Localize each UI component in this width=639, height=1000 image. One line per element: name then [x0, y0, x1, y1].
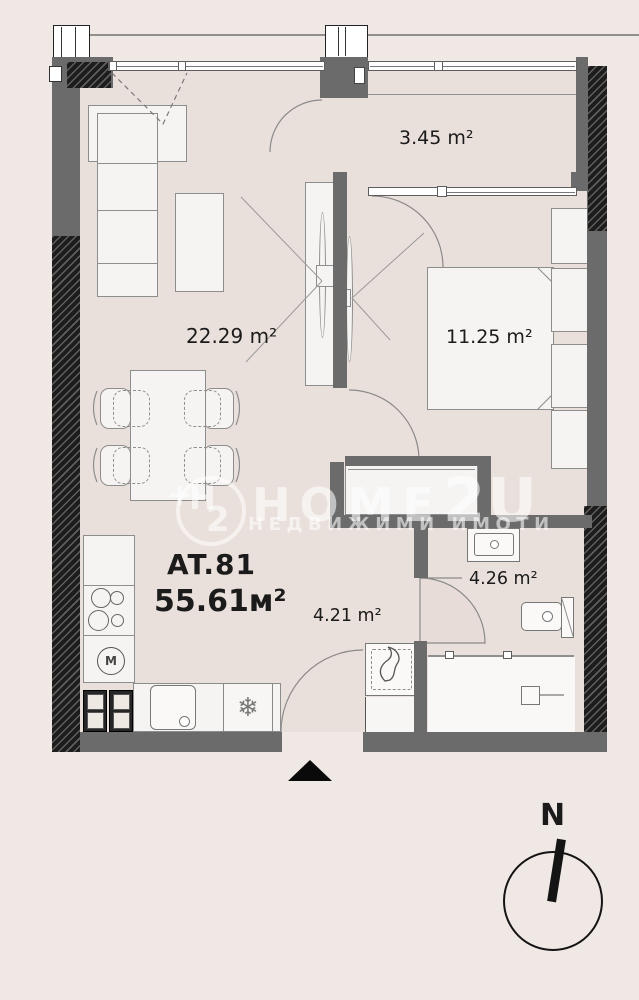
window-glass-line	[370, 66, 575, 67]
wall-balcony-right	[576, 57, 588, 190]
wall-bottom-right	[363, 732, 607, 752]
living-area-label: 22.29 m²	[186, 324, 277, 348]
column-detail-line	[345, 27, 346, 56]
wall-bathdoor-lower	[414, 641, 427, 733]
wall-notch	[49, 66, 62, 82]
apartment-total-area-label: 55.61м²	[154, 584, 287, 619]
watermark-subtitle: НЕДВИЖИМИ ИМОТИ	[248, 514, 555, 535]
bedroom-window	[443, 187, 577, 196]
window-mullion	[434, 61, 443, 71]
wall-hatched-bathroom-right	[584, 506, 607, 752]
bedroom-area-label: 11.25 m²	[446, 326, 533, 348]
chair-backrest-arc	[94, 391, 98, 425]
wall-tv-partition	[333, 172, 347, 388]
watermark-logo-sub2: 2	[206, 500, 230, 540]
balcony-door-leaf	[368, 187, 443, 196]
chair-backrest-arc	[236, 391, 240, 425]
bed-pillow-fold	[538, 268, 552, 409]
toilet-tank-diagonal	[562, 599, 573, 636]
structural-column-mid	[325, 25, 368, 59]
window-opening-dashes	[112, 73, 187, 124]
floor-plan-page: { "plan": { "apartment": { "code": "AT.8…	[0, 0, 639, 1000]
window-mullion	[437, 186, 447, 197]
wall-bedroom-right	[587, 190, 607, 508]
living-room-window	[108, 61, 325, 71]
chair-backrest-arc	[94, 448, 98, 482]
balcony-railing-window	[368, 61, 577, 71]
chair-backrest-arc	[236, 448, 240, 482]
wall-left-upper	[52, 88, 80, 236]
entrance-arrow	[288, 760, 332, 781]
boiler-flame-icon	[380, 647, 399, 681]
hallway-area-label: 4.21 m²	[313, 606, 382, 626]
apartment-code-label: AT.81	[167, 548, 256, 581]
window-mullion	[109, 61, 117, 71]
compass-north-label: N	[540, 798, 565, 833]
wall-hatched-left	[52, 236, 80, 752]
balcony-area-label: 3.45 m²	[399, 127, 473, 149]
column-detail-line	[338, 27, 339, 56]
window-glass-line	[110, 66, 323, 67]
entrance-door-swing	[281, 650, 363, 732]
bedroom-door-swing	[349, 390, 419, 460]
window-mullion	[178, 61, 186, 71]
balcony-door-swing-living	[270, 100, 322, 152]
balcony-door-swing-bedroom	[372, 196, 443, 267]
wall-hatched-column-right	[588, 66, 607, 231]
wall-hatched-top-left	[67, 62, 111, 88]
wall-bottom-left	[80, 732, 282, 752]
bathroom-area-label: 4.26 m²	[469, 569, 538, 589]
window-glass-line	[445, 192, 575, 193]
cabinet-swing-lines-bedroom	[352, 233, 424, 340]
wall-notch	[354, 67, 365, 84]
